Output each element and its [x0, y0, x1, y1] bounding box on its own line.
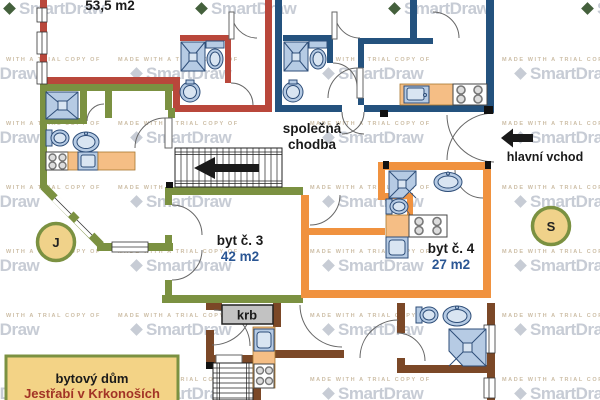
blue-bathroom-fixtures: [283, 41, 327, 102]
corner-shower: [389, 171, 416, 198]
shower: [46, 92, 78, 119]
kitchen-sink: [78, 152, 98, 170]
door-swing: [135, 118, 165, 148]
kitchen-sink: [254, 329, 274, 351]
corner-shower: [449, 329, 486, 366]
kitchen-sink: [386, 237, 408, 258]
kitchen-sink: [404, 86, 429, 103]
corridor-label-line1: společná: [283, 121, 342, 136]
entrance-label: hlavní vchod: [507, 150, 583, 164]
door-swing: [447, 115, 494, 162]
corridor-label-line2: chodba: [288, 137, 336, 152]
apartment-green-walls: [40, 84, 303, 303]
door-swing: [300, 305, 342, 347]
shower: [284, 42, 308, 71]
door-swing: [172, 250, 202, 280]
fireplace-label: krb: [237, 308, 257, 323]
entrance-arrow-icon: [501, 129, 533, 148]
title-box: bytový dům Jestřabí v Krkonoších: [6, 356, 178, 400]
door-leaf: [216, 355, 242, 363]
toilet: [206, 41, 224, 69]
blue-kitchen: [400, 84, 487, 105]
marker-left-badge: J: [38, 224, 75, 261]
floor-plan-drawing: krb J S bytový dům Jestřabí v Krkonoších…: [0, 0, 600, 400]
door-leaf: [332, 12, 337, 39]
apartment-top-left-area-label: 53,5 m2: [85, 0, 135, 13]
apartment-4-area: 27 m2: [432, 257, 470, 272]
door-swing: [231, 83, 253, 105]
brown-apartment-fixtures: [253, 306, 486, 388]
marker-left-label: J: [52, 235, 59, 250]
door-swing: [87, 104, 104, 121]
door-swing: [397, 333, 425, 361]
shower: [181, 42, 205, 71]
door-leaf: [165, 118, 172, 148]
door-swing: [433, 12, 459, 38]
toilet: [416, 307, 438, 323]
floor-plan-canvas: SmartDrawSmartDrawSmartDrawSmartDrawSmar…: [0, 0, 600, 400]
stove: [46, 152, 68, 170]
washbasin: [443, 306, 471, 326]
door-swing: [335, 13, 360, 38]
apartment-4-name: byt č. 4: [428, 241, 475, 256]
kitchen-counter: [386, 215, 409, 237]
fireplace-box: krb: [222, 305, 273, 324]
stove: [409, 215, 447, 237]
kitchen-counter: [98, 152, 135, 170]
washbasin: [180, 80, 200, 102]
window: [484, 378, 495, 398]
marker-right-badge: S: [533, 208, 570, 245]
washbasin: [283, 80, 303, 102]
kitchen-counter: [68, 152, 78, 170]
apartment-3-area: 42 m2: [221, 249, 259, 264]
door-swing: [360, 320, 398, 358]
door-swing: [232, 13, 257, 38]
green-apartment-fixtures: [46, 92, 135, 170]
door-swing: [310, 195, 340, 225]
door-swing: [333, 63, 357, 87]
staircase-horizontal: [175, 148, 282, 187]
stove: [254, 364, 274, 388]
red-bathroom-fixtures: [180, 41, 224, 102]
door-swing: [328, 68, 358, 98]
apartment-3-name: byt č. 3: [217, 233, 264, 248]
door-swing: [172, 205, 202, 235]
toilet: [309, 41, 327, 69]
staircase-vertical: [213, 363, 253, 400]
building-title-line2: Jestřabí v Krkonoších: [24, 386, 160, 400]
marker-right-label: S: [547, 219, 556, 234]
building-title-line1: bytový dům: [56, 371, 129, 386]
door-swing: [447, 113, 494, 160]
door-leaf: [229, 12, 234, 39]
washbasin: [73, 132, 99, 152]
toilet: [386, 199, 408, 214]
toilet: [46, 130, 69, 146]
stove: [453, 84, 487, 105]
door-leaf: [357, 68, 363, 98]
washbasin: [434, 172, 462, 192]
